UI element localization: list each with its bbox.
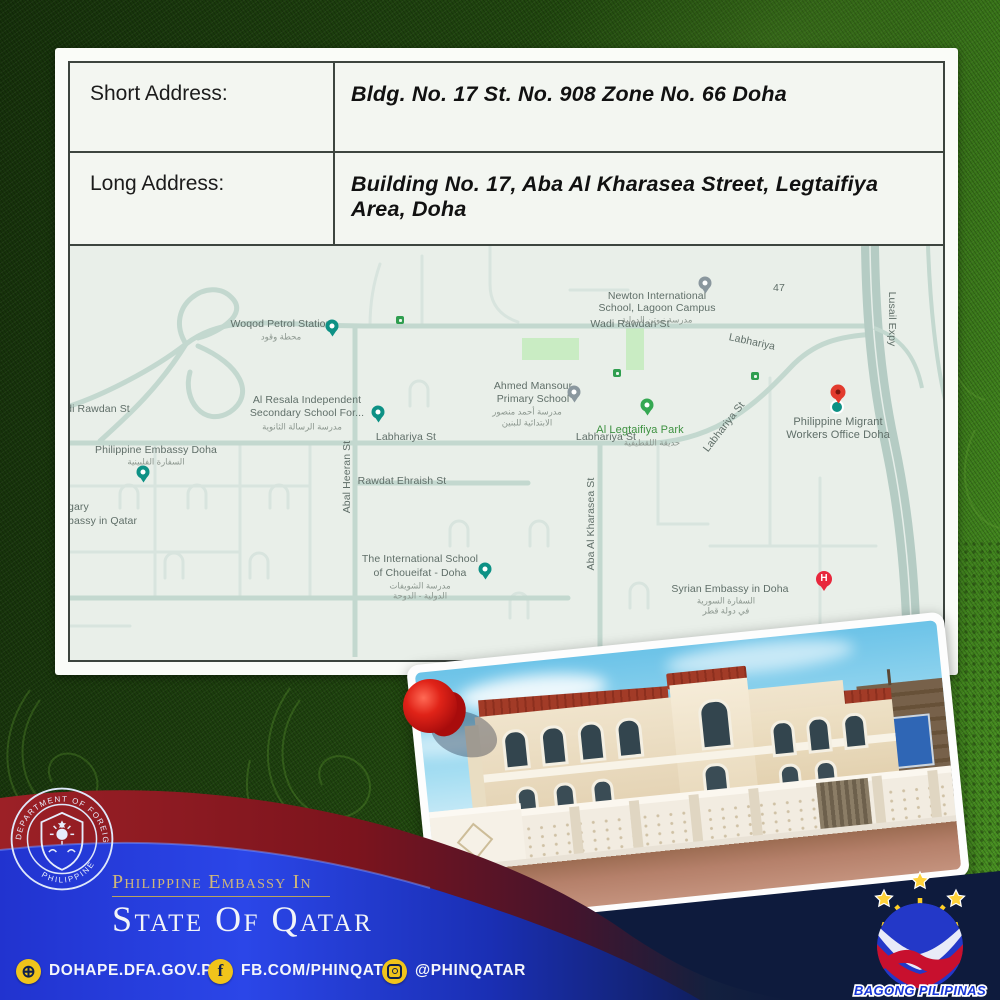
map-label-alresala-1: Al Resala Independent bbox=[253, 394, 361, 406]
map-label-newton-ar: مدرسة نيوتن الدولية bbox=[622, 315, 693, 326]
arched-window bbox=[539, 724, 569, 766]
map-label-47: 47 bbox=[773, 282, 785, 294]
legtaifiya-park-pin-icon bbox=[641, 399, 654, 412]
map-label-abal-heeran: Abal Heeran St bbox=[341, 441, 353, 514]
poster-root: Short Address: Bldg. No. 17 St. No. 908 … bbox=[0, 0, 1000, 1000]
bagong-label: BAGONG PILIPINAS bbox=[854, 983, 986, 998]
map-label-ahmed-mansour-ar2: الابتدائية للبنين bbox=[502, 418, 552, 429]
map-label-ahmed-mansour-2: Primary School bbox=[497, 393, 570, 405]
map-label-choueifat-ar2: الدولية - الدوحة bbox=[393, 591, 447, 602]
seal-doves bbox=[49, 850, 75, 852]
address-table: Short Address: Bldg. No. 17 St. No. 908 … bbox=[68, 61, 945, 246]
map-label-woqod: Woqod Petrol Station bbox=[230, 318, 331, 330]
arched-window bbox=[769, 719, 797, 757]
map-label-newton-1: Newton International bbox=[608, 290, 706, 302]
map-label-woqod-ar: محطة وقود bbox=[261, 332, 301, 343]
short-address-value: Bldg. No. 17 St. No. 908 Zone No. 66 Doh… bbox=[335, 63, 943, 151]
minaret-pole bbox=[887, 669, 892, 685]
map-label-choueifat-2: of Choueifat - Doha bbox=[374, 567, 467, 579]
address-card: Short Address: Bldg. No. 17 St. No. 908 … bbox=[55, 48, 958, 675]
facebook-link[interactable]: f FB.COM/PHINQATAR bbox=[208, 958, 406, 984]
map-label-aba-al-kharasea: Aba Al Kharasea St bbox=[585, 478, 597, 571]
arched-window bbox=[577, 720, 607, 762]
website-text: DOHAPE.DFA.GOV.PH bbox=[49, 962, 224, 980]
map-label-syrian-embassy-ar2: في دولة قطر bbox=[703, 606, 750, 617]
long-address-label: Long Address: bbox=[70, 153, 335, 244]
embassy-title-line1: Philippine Embassy In bbox=[112, 872, 373, 892]
map-label-syrian-embassy: Syrian Embassy in Doha bbox=[671, 583, 788, 595]
facebook-icon: f bbox=[208, 959, 233, 984]
short-address-label: Short Address: bbox=[70, 63, 335, 151]
bagong-ball bbox=[870, 903, 970, 989]
pmwo-destination-pin-icon bbox=[831, 385, 846, 400]
red-pushpin-icon bbox=[392, 672, 512, 777]
location-map: Woqod Petrol Station محطة وقود Wadi Rawd… bbox=[68, 246, 945, 662]
map-label-ahmed-mansour-ar1: مدرسة أحمد منصور bbox=[492, 407, 562, 418]
transit-stop-icon bbox=[396, 316, 404, 324]
map-label-alresala-ar: مدرسة الرسالة الثانوية bbox=[262, 422, 342, 433]
map-label-rawdat-ehraish: Rawdat Ehraish St bbox=[358, 475, 447, 487]
table-row-long-address: Long Address: Building No. 17, Aba Al Kh… bbox=[70, 153, 943, 246]
map-label-choueifat-1: The International School bbox=[362, 553, 478, 565]
hospital-pin-icon: H bbox=[816, 571, 832, 587]
philippine-embassy-pin-icon bbox=[137, 466, 150, 479]
map-label-di-rawdan: di Rawdan St bbox=[68, 403, 130, 415]
dfa-seal: DEPARTMENT OF FOREIGN AFFAIRS PHILIPPINE… bbox=[6, 783, 118, 895]
instagram-icon bbox=[382, 959, 407, 984]
map-label-lusail-expy: Lusail Expy bbox=[886, 292, 898, 347]
arched-window-tower bbox=[697, 698, 734, 751]
map-label-pmwo-1: Philippine Migrant bbox=[793, 416, 882, 428]
website-link[interactable]: ⊕ DOHAPE.DFA.GOV.PH bbox=[16, 958, 224, 984]
map-label-ahmed-mansour-1: Ahmed Mansour bbox=[494, 380, 572, 392]
woqod-place-pin-icon bbox=[326, 320, 339, 333]
embassy-title-rule bbox=[112, 896, 330, 897]
map-label-alresala-2: Secondary School For... bbox=[250, 407, 364, 419]
transit-stop-icon bbox=[613, 369, 621, 377]
map-label-labhariya-h2: Labhariya St bbox=[576, 431, 636, 443]
choueifat-school-pin-icon bbox=[479, 563, 492, 576]
map-label-labhariya-h1: Labhariya St bbox=[376, 431, 436, 443]
instagram-link[interactable]: @PHINQATAR bbox=[382, 958, 526, 984]
map-label-hungary-1: gary bbox=[68, 501, 89, 513]
ahmed-mansour-pin-icon bbox=[568, 386, 581, 399]
globe-icon: ⊕ bbox=[16, 959, 41, 984]
arched-window bbox=[805, 715, 833, 753]
arched-window bbox=[614, 717, 644, 759]
map-label-hungary-2: bassy in Qatar bbox=[68, 515, 137, 527]
map-label-pmwo-2: Workers Office Doha bbox=[786, 429, 890, 441]
newton-school-pin-icon bbox=[699, 277, 712, 290]
instagram-text: @PHINQATAR bbox=[415, 962, 526, 980]
embassy-title-line2: State Of Qatar bbox=[112, 899, 373, 940]
table-row-short-address: Short Address: Bldg. No. 17 St. No. 908 … bbox=[70, 63, 943, 153]
map-label-newton-2: School, Lagoon Campus bbox=[598, 302, 715, 314]
transit-stop-icon bbox=[751, 372, 759, 380]
alresala-school-pin-icon bbox=[372, 406, 385, 419]
map-label-philippine-embassy-ar: السفارة الفلبينية bbox=[127, 457, 184, 468]
map-label-philippine-embassy: Philippine Embassy Doha bbox=[95, 444, 217, 456]
embassy-title-block: Philippine Embassy In State Of Qatar bbox=[112, 872, 373, 940]
long-address-value: Building No. 17, Aba Al Kharasea Street,… bbox=[335, 153, 943, 244]
bagong-pilipinas-logo: BAGONG PILIPINAS bbox=[848, 858, 993, 1000]
arched-window bbox=[841, 712, 869, 750]
